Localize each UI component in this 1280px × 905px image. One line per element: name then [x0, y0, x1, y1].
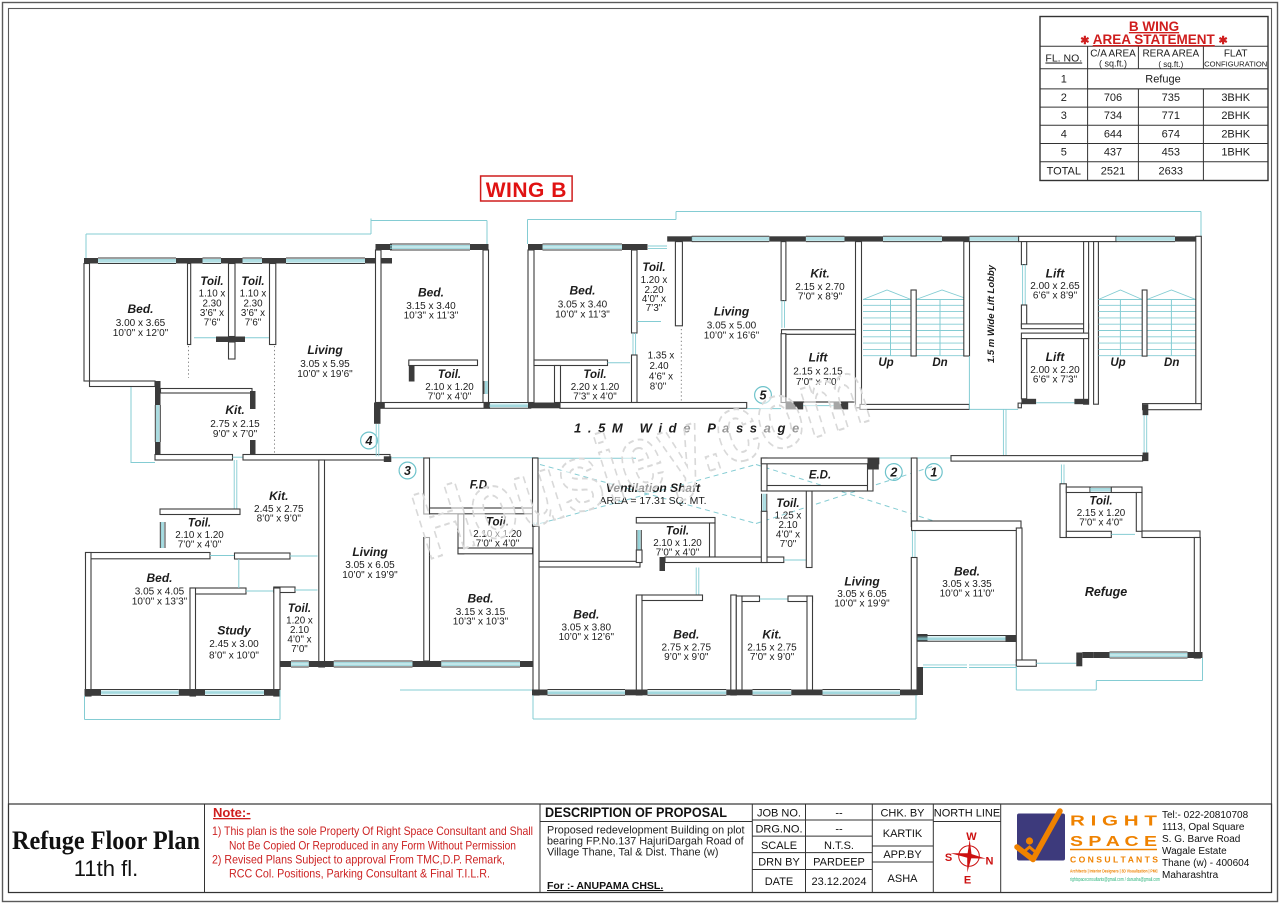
svg-text:437: 437: [1104, 147, 1122, 159]
svg-text:7’6": 7’6": [204, 318, 221, 329]
svg-text:Note:-: Note:-: [213, 805, 251, 820]
svg-text:KARTIK: KARTIK: [883, 828, 923, 840]
svg-text:4: 4: [1061, 128, 1067, 140]
svg-text:S: S: [945, 852, 952, 864]
svg-text:CONFIGURATION: CONFIGURATION: [1204, 60, 1267, 69]
svg-text:10’0" x 12’0": 10’0" x 12’0": [113, 328, 169, 339]
svg-text:Kit.: Kit.: [810, 267, 829, 281]
svg-text:10’0" x 19’6": 10’0" x 19’6": [297, 369, 353, 380]
svg-text:Living: Living: [844, 574, 880, 588]
svg-text:Toil.: Toil.: [666, 526, 689, 538]
svg-text:RCC Col. Positions, Parking Co: RCC Col. Positions, Parking Consultant &…: [229, 867, 490, 881]
svg-text:10’0" x 11’0": 10’0" x 11’0": [940, 589, 995, 600]
svg-text:Architects | Interior Designer: Architects | Interior Designers | 3D Vis…: [1070, 869, 1158, 875]
svg-text:W: W: [966, 831, 977, 843]
svg-text:7’0" x 4’0": 7’0" x 4’0": [656, 548, 700, 559]
svg-text:NORTH LINE: NORTH LINE: [934, 808, 1000, 820]
svg-text:2BHK: 2BHK: [1221, 110, 1250, 122]
svg-text:1113, Opal Square: 1113, Opal Square: [1162, 822, 1245, 833]
svg-text:Bed.: Bed.: [569, 284, 595, 298]
svg-text:1BHK: 1BHK: [1221, 147, 1250, 159]
svg-text:10’3" x 11’3": 10’3" x 11’3": [404, 311, 459, 322]
svg-text:FLAT: FLAT: [1224, 49, 1248, 60]
svg-text:( sq.ft.): ( sq.ft.): [1158, 60, 1183, 69]
svg-text:1.35 x: 1.35 x: [648, 351, 675, 362]
svg-text:4: 4: [365, 434, 373, 448]
svg-text:JOB NO.: JOB NO.: [757, 808, 801, 820]
svg-text:10’0" x 13’3": 10’0" x 13’3": [132, 597, 188, 608]
svg-text:Not Be Copied Or Reproduced in: Not Be Copied Or Reproduced in any Form …: [229, 839, 516, 853]
svg-text:FL. NO.: FL. NO.: [1045, 53, 1082, 65]
svg-text:Tel:- 022-20810708: Tel:- 022-20810708: [1162, 810, 1249, 821]
svg-text:--: --: [835, 808, 843, 820]
svg-text:S P A C E: S P A C E: [1070, 834, 1157, 850]
svg-text:Thane (w) - 400604: Thane (w) - 400604: [1162, 858, 1250, 869]
svg-text:Dn: Dn: [1164, 357, 1179, 369]
svg-text:TOTAL: TOTAL: [1047, 166, 1081, 178]
svg-text:6’6" x 7’3": 6’6" x 7’3": [1033, 375, 1078, 386]
svg-text:2: 2: [889, 465, 897, 479]
svg-text:WING B: WING B: [486, 179, 567, 202]
svg-text:2: 2: [1061, 92, 1067, 104]
svg-text:Living: Living: [714, 305, 750, 319]
svg-text:Living: Living: [307, 343, 343, 357]
svg-text:Lift: Lift: [1046, 266, 1066, 280]
svg-text:Toil.: Toil.: [241, 276, 264, 288]
svg-text:rightspaceconsultants@gmail.co: rightspaceconsultants@gmail.com / danush…: [1070, 877, 1160, 883]
svg-text:23.12.2024: 23.12.2024: [811, 876, 866, 888]
svg-text:Living: Living: [352, 545, 388, 559]
svg-text:PARDEEP: PARDEEP: [813, 857, 865, 869]
svg-text:SCALE: SCALE: [761, 840, 797, 852]
svg-text:7’0": 7’0": [291, 644, 308, 655]
svg-text:For :- ANUPAMA CHSL.: For :- ANUPAMA CHSL.: [547, 880, 663, 892]
svg-text:10’3" x 10’3": 10’3" x 10’3": [453, 617, 509, 628]
svg-text:DESCRIPTION OF PROPOSAL: DESCRIPTION OF PROPOSAL: [545, 805, 727, 820]
svg-text:C O N S U L T A N T S: C O N S U L T A N T S: [1070, 855, 1158, 865]
svg-text:Bed.: Bed.: [954, 564, 980, 578]
svg-text:Refuge: Refuge: [1085, 585, 1127, 599]
svg-text:S. G. Barve Road: S. G. Barve Road: [1162, 834, 1240, 845]
svg-text:11th fl.: 11th fl.: [74, 856, 138, 881]
svg-text:7’3" x 4’0": 7’3" x 4’0": [573, 392, 617, 403]
svg-text:Village Thane, Tal & Dist. Tha: Village Thane, Tal & Dist. Thane (w): [547, 847, 718, 859]
svg-text:Kit.: Kit.: [762, 628, 781, 642]
svg-text:3: 3: [1061, 110, 1067, 122]
svg-text:Study: Study: [217, 624, 252, 638]
svg-text:1) This plan is the sole Prop: 1) This plan is the sole Property Of Rig…: [212, 824, 533, 838]
svg-text:10’0" x 19’9": 10’0" x 19’9": [342, 570, 398, 581]
svg-text:✱ AREA STATEMENT ✱: ✱ AREA STATEMENT ✱: [1080, 32, 1227, 47]
svg-text:Bed.: Bed.: [573, 608, 599, 622]
svg-text:674: 674: [1162, 128, 1180, 140]
svg-text:7’6": 7’6": [245, 318, 262, 329]
svg-text:706: 706: [1104, 92, 1122, 104]
svg-text:10’0" x 16’6": 10’0" x 16’6": [704, 331, 760, 342]
svg-text:Bed.: Bed.: [673, 628, 699, 642]
svg-text:10’0" x 19’9": 10’0" x 19’9": [834, 599, 890, 610]
svg-text:9’0" x 9’0": 9’0" x 9’0": [664, 652, 709, 663]
svg-text:Toil.: Toil.: [200, 276, 223, 288]
svg-text:--: --: [835, 824, 843, 836]
svg-text:Toil.: Toil.: [776, 498, 799, 510]
svg-text:771: 771: [1162, 110, 1180, 122]
svg-text:8’0" x 10’0": 8’0" x 10’0": [209, 651, 259, 662]
svg-text:Refuge Floor Plan: Refuge Floor Plan: [12, 826, 201, 855]
svg-text:CHK. BY: CHK. BY: [880, 808, 925, 820]
svg-text:1.5 m Wide Lift Lobby: 1.5 m Wide Lift Lobby: [986, 264, 997, 363]
svg-text:734: 734: [1104, 110, 1122, 122]
svg-text:Toil.: Toil.: [188, 518, 211, 530]
svg-text:DRG.NO.: DRG.NO.: [755, 824, 802, 836]
svg-text:Bed.: Bed.: [467, 592, 493, 606]
svg-text:Wagale Estate: Wagale Estate: [1162, 846, 1227, 857]
svg-text:Bed.: Bed.: [418, 286, 444, 300]
svg-text:8’0" x 9’0": 8’0" x 9’0": [257, 514, 302, 525]
svg-text:7’0" x 4’0": 7’0" x 4’0": [428, 392, 472, 403]
svg-text:Toil.: Toil.: [438, 369, 461, 381]
svg-text:RERA AREA: RERA AREA: [1142, 49, 1199, 60]
svg-text:Refuge: Refuge: [1145, 74, 1180, 86]
svg-text:Dn: Dn: [932, 357, 947, 369]
svg-text:Up: Up: [1110, 357, 1125, 369]
svg-text:Toil.: Toil.: [288, 603, 311, 615]
svg-text:E: E: [964, 875, 971, 887]
svg-text:Toil.: Toil.: [583, 369, 606, 381]
svg-text:5: 5: [1061, 147, 1067, 159]
svg-text:Lift: Lift: [1046, 350, 1066, 364]
svg-text:9’0" x 7’0": 9’0" x 7’0": [213, 429, 258, 440]
svg-text:DATE: DATE: [765, 876, 794, 888]
svg-text:2) Revised Plans Subject to: 2) Revised Plans Subject to approval Fro…: [212, 853, 505, 867]
svg-text:7’0" x 9’0": 7’0" x 9’0": [750, 652, 795, 663]
svg-text:Up: Up: [878, 357, 893, 369]
svg-text:Toil.: Toil.: [1089, 496, 1112, 508]
svg-text:DRN BY: DRN BY: [758, 857, 800, 869]
svg-text:453: 453: [1162, 147, 1180, 159]
svg-text:N: N: [986, 856, 994, 868]
svg-text:7’0": 7’0": [780, 539, 797, 550]
svg-text:3BHK: 3BHK: [1221, 92, 1250, 104]
svg-text:7’0" x 4’0": 7’0" x 4’0": [1079, 518, 1123, 529]
svg-text:Toil.: Toil.: [642, 262, 665, 274]
svg-text:644: 644: [1104, 128, 1122, 140]
svg-text:2BHK: 2BHK: [1221, 128, 1250, 140]
svg-text:7’3": 7’3": [646, 303, 663, 314]
svg-text:2.40: 2.40: [649, 361, 669, 372]
svg-text:10’0" x 12’6": 10’0" x 12’6": [559, 632, 615, 643]
svg-text:APP.BY: APP.BY: [883, 849, 922, 861]
svg-text:2.45 x 3.00: 2.45 x 3.00: [209, 639, 259, 650]
svg-text:ASHA: ASHA: [888, 873, 919, 885]
svg-text:Bed.: Bed.: [127, 302, 153, 316]
svg-text:2633: 2633: [1159, 166, 1183, 178]
svg-text:8’0": 8’0": [650, 382, 667, 393]
svg-text:E.D.: E.D.: [809, 470, 831, 482]
svg-text:6’6" x 8’9": 6’6" x 8’9": [1033, 291, 1078, 302]
svg-text:Kit.: Kit.: [225, 403, 244, 417]
svg-text:R I G H T: R I G H T: [1070, 814, 1157, 830]
svg-text:735: 735: [1162, 92, 1180, 104]
svg-text:Kit.: Kit.: [269, 489, 288, 503]
svg-text:10’0" x 11’3": 10’0" x 11’3": [555, 310, 610, 321]
svg-text:1: 1: [930, 465, 937, 479]
svg-text:Maharashtra: Maharashtra: [1162, 870, 1219, 881]
svg-text:2521: 2521: [1101, 166, 1125, 178]
svg-text:7’0" x 8’9": 7’0" x 8’9": [798, 292, 843, 303]
svg-text:7’0" x 4’0": 7’0" x 4’0": [178, 540, 222, 551]
svg-text:Bed.: Bed.: [146, 571, 172, 585]
svg-text:( sq.ft.): ( sq.ft.): [1099, 59, 1127, 69]
svg-text:N.T.S.: N.T.S.: [824, 840, 854, 852]
svg-text:1: 1: [1061, 74, 1067, 86]
